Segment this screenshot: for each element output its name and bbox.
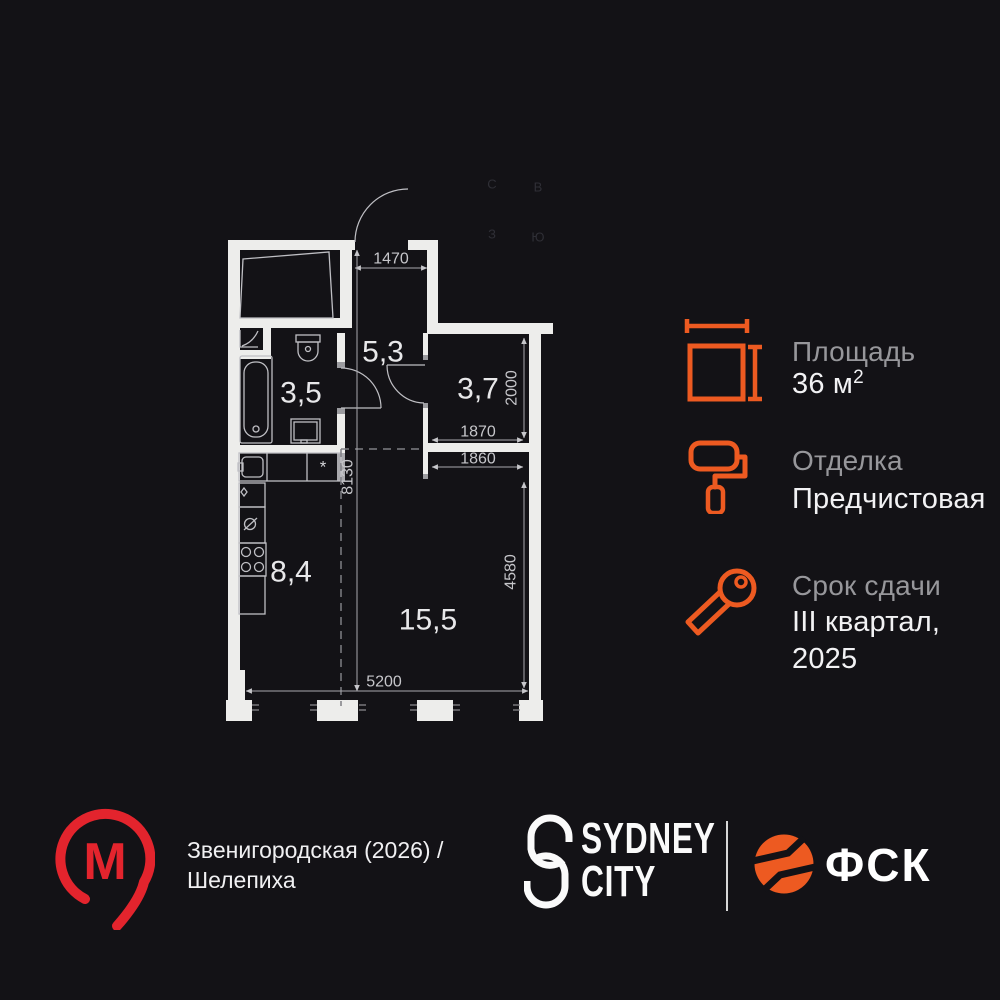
deadline-value-line2: 2025 — [792, 643, 857, 676]
sydney-line1: SYDNEY — [581, 817, 716, 860]
wall-left — [228, 240, 240, 670]
sydney-line2: CITY — [581, 860, 716, 903]
wall-bedroom-top — [427, 323, 553, 334]
pillar — [417, 700, 453, 721]
metro-stations: Звенигородская (2026) / Шелепиха — [187, 835, 443, 895]
wall-closet-right — [263, 328, 271, 350]
pillar — [226, 700, 252, 721]
key-icon — [684, 560, 768, 642]
dimension-lines — [246, 250, 528, 691]
deadline-label: Срок сдачи — [792, 570, 941, 602]
stove-burner — [242, 548, 251, 557]
wall-hall-right — [427, 240, 438, 333]
dim-5200: 5200 — [366, 674, 402, 691]
area-icon — [683, 316, 765, 406]
wall-wardrobe-bottom — [228, 318, 352, 328]
sydney-city-monogram — [524, 814, 576, 910]
window-ticks — [252, 705, 520, 710]
kitchen-sink — [242, 457, 263, 477]
bathroom-sink — [291, 419, 320, 443]
sydney-city-wordmark: SYDNEY CITY — [581, 817, 716, 903]
wall-bedroom-stub-lower — [423, 403, 428, 443]
footer-divider — [726, 821, 728, 911]
flat-card: С В З Ю — [0, 0, 1000, 1000]
compass-east: В — [534, 180, 543, 195]
closet-shape — [240, 330, 258, 347]
metro-logo: М — [55, 805, 155, 930]
finishing-value: Предчистовая — [792, 483, 986, 516]
kitchen-counter — [238, 453, 341, 614]
room-label-bathroom: 3,5 — [280, 377, 322, 410]
stove-burner — [255, 563, 264, 572]
dim-4580: 4580 — [503, 554, 520, 590]
wall-wardrobe-hall — [340, 250, 352, 328]
room-label-living: 15,5 — [399, 604, 457, 637]
compass-west: З — [488, 227, 496, 242]
fsk-wordmark: ФСК — [825, 838, 932, 892]
pillar — [317, 700, 358, 721]
wall-right — [529, 334, 541, 700]
vent-symbol: * — [320, 458, 327, 477]
finishing-label: Отделка — [792, 445, 903, 477]
wall-left-column — [228, 670, 245, 700]
wall-top-left — [228, 240, 355, 250]
stove-burner — [242, 563, 251, 572]
floor-plan: С В З Ю — [215, 158, 560, 730]
dim-1860: 1860 — [460, 451, 496, 468]
dim-8130: 8130 — [340, 459, 357, 495]
bedroom-door — [387, 365, 425, 403]
stove-burner — [255, 548, 264, 557]
metro-stations-line2: Шелепиха — [187, 865, 443, 895]
area-value: 36 м2 — [792, 368, 864, 401]
dim-2000: 2000 — [504, 370, 521, 406]
area-label: Площадь — [792, 336, 915, 368]
deadline-value-line1: III квартал, — [792, 606, 940, 639]
compass-south: Ю — [531, 230, 544, 245]
bathtub — [240, 356, 272, 443]
dim-1870: 1870 — [460, 424, 496, 441]
dim-1470: 1470 — [373, 251, 409, 268]
wall-bath-kitchen — [228, 445, 345, 453]
room-label-bedroom: 3,7 — [457, 373, 499, 406]
pillar — [519, 700, 543, 721]
room-label-hallway: 5,3 — [362, 336, 404, 369]
area-value-number: 36 м — [792, 368, 853, 400]
doors — [341, 189, 425, 408]
compass-north: С — [487, 177, 496, 192]
compass: С В З Ю — [487, 177, 544, 245]
area-value-sup: 2 — [853, 367, 864, 388]
toilet — [296, 335, 320, 361]
fsk-logo-mark — [753, 832, 817, 896]
bathroom-door — [341, 368, 381, 408]
room-label-kitchen: 8,4 — [270, 556, 312, 589]
entrance-door-arc — [355, 189, 408, 242]
room-labels: 3,5 5,3 3,7 8,4 15,5 * — [270, 336, 499, 637]
wardrobe-outline — [240, 252, 333, 318]
paint-roller-icon — [686, 438, 752, 514]
metro-stations-line1: Звенигородская (2026) / — [187, 835, 443, 865]
wall-closet-bottom — [228, 350, 271, 359]
metro-letter: М — [83, 833, 126, 891]
